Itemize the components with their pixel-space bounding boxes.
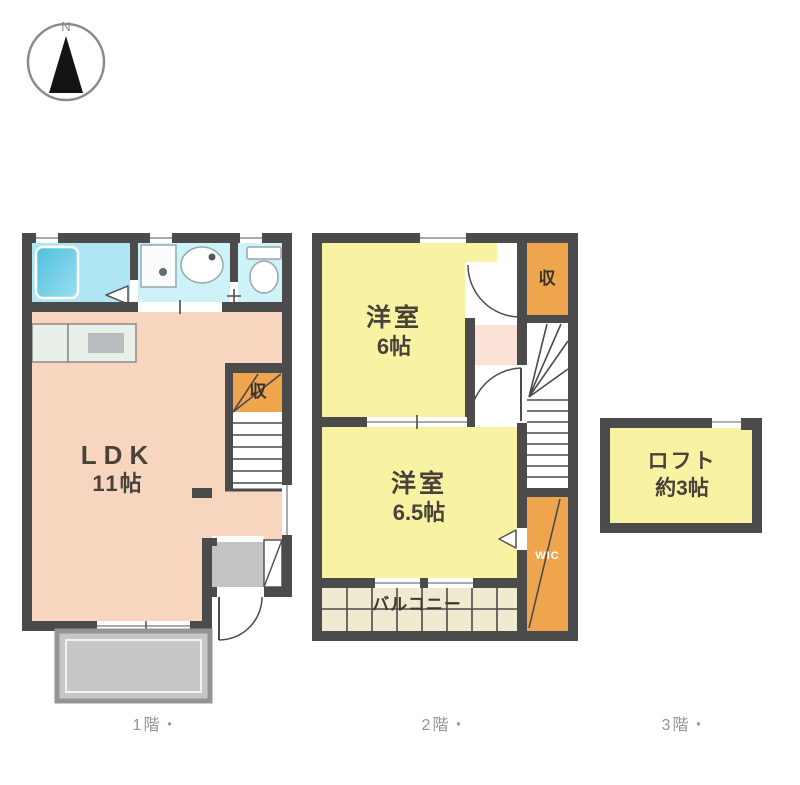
floor2-caption: 2階・ [400, 711, 490, 735]
wall [517, 315, 578, 323]
sink-faucet [209, 254, 216, 261]
hallway [475, 325, 517, 365]
wall [192, 488, 212, 498]
floor2-stairs [527, 323, 568, 488]
wic-door-opening [517, 528, 527, 550]
wall [517, 323, 527, 365]
bedroom65-label: 洋室 6.5帖 [330, 470, 508, 526]
wall [467, 417, 475, 427]
entrance-genkan [212, 542, 264, 587]
wall [212, 538, 217, 546]
wall [202, 538, 212, 631]
balcony-label: バルコニー [337, 595, 497, 615]
wall [322, 417, 367, 427]
floor1-caption: 1階・ [111, 711, 201, 735]
bedroom65-size: 6.5帖 [330, 499, 508, 526]
washing-machine-pan [141, 245, 176, 287]
floor2-plan [312, 233, 578, 641]
wall [225, 363, 233, 490]
wall [130, 243, 138, 280]
compass-north-label: N [58, 20, 74, 35]
floor3-caption: 3階・ [640, 711, 730, 735]
kitchen-sink [88, 333, 124, 353]
loft-name: ロフト [606, 448, 758, 475]
kitchen-counter-left [32, 324, 68, 362]
wall [225, 363, 292, 373]
wall [282, 233, 292, 597]
floor2-closet-label: 収 [523, 269, 571, 289]
washing-machine-drain [159, 268, 167, 276]
ldk-size: 11帖 [43, 470, 193, 497]
floor1-closet-label: 収 [234, 382, 282, 402]
wall [517, 497, 527, 631]
bedroom65-name: 洋室 [330, 470, 508, 499]
wall [312, 233, 322, 641]
wall [22, 233, 32, 631]
wall [600, 523, 762, 533]
floorplan-canvas: N 収 LDK 11帖 洋室 6帖 洋室 6.5帖 収 WIC バルコニー ロフ… [0, 0, 800, 785]
wall [517, 488, 578, 497]
floorplan-svg [0, 0, 800, 785]
entrance-step-edge [212, 536, 264, 542]
wall [312, 631, 578, 641]
loft-size: 約3帖 [606, 475, 758, 502]
sink [181, 247, 223, 283]
toilet-bowl [250, 261, 278, 293]
ldk-name: LDK [43, 440, 193, 470]
wall [741, 418, 762, 430]
bedroom6-label: 洋室 6帖 [320, 304, 468, 360]
loft-label: ロフト 約3帖 [606, 448, 758, 502]
wall [568, 233, 578, 641]
north-arrow-icon [49, 36, 83, 93]
wic-label: WIC [525, 550, 570, 563]
toilet-tank [247, 247, 281, 259]
entrance-door-opening [217, 587, 264, 597]
wall [517, 423, 527, 497]
bedroom6-name: 洋室 [320, 304, 468, 333]
bedroom6-size: 6帖 [320, 333, 468, 360]
terrace [57, 631, 210, 701]
wall [600, 418, 712, 428]
compass [28, 24, 104, 100]
ldk-label: LDK 11帖 [43, 440, 193, 497]
bathtub [36, 247, 78, 298]
